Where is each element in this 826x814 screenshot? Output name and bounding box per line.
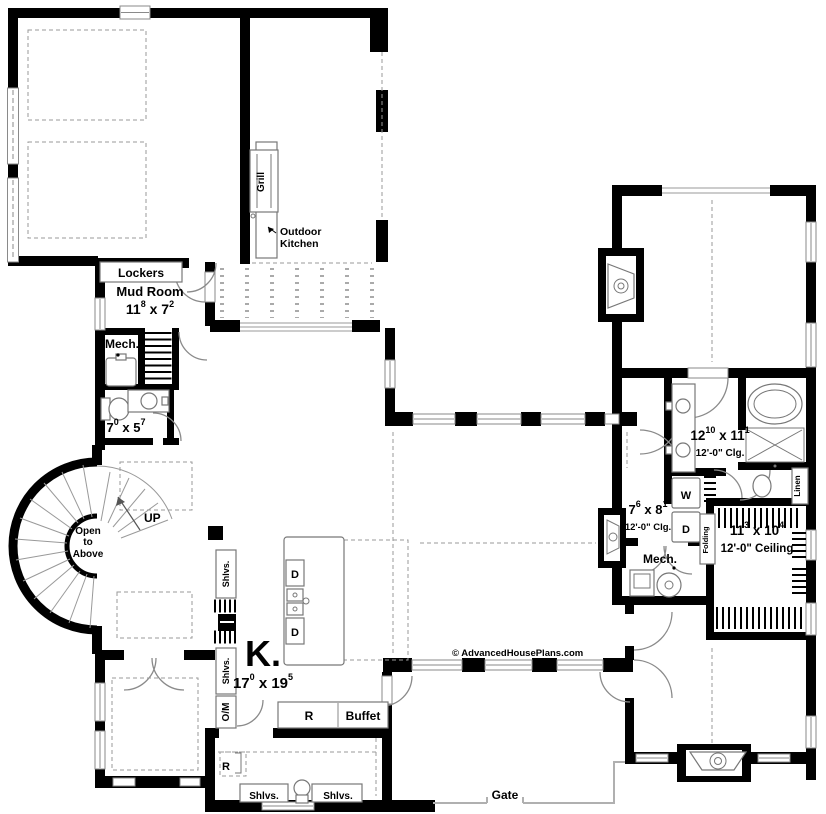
label-closet-dims: 113 x 104	[730, 520, 784, 538]
outdoor-kitchen-fixtures	[250, 142, 278, 258]
sliding-doors	[240, 188, 770, 331]
floor-plan: Lockers Mud Room 118 x 72 Mech. 70 x 57 …	[0, 0, 826, 814]
copyright: © AdvancedHousePlans.com	[452, 648, 583, 659]
water-heater	[106, 358, 136, 386]
label-washer: W	[681, 490, 692, 502]
label-powder-dims: 70 x 57	[107, 417, 146, 435]
label-outdoor-kitchen-1: Outdoor	[280, 226, 321, 238]
label-mech-left: Mech.	[105, 337, 139, 351]
vanity-sink-1	[676, 399, 690, 413]
label-fridge-counter: R	[305, 709, 314, 723]
label-laundry-clg: 12'-0" Clg.	[625, 522, 671, 533]
label-fridge-pantry: R	[222, 761, 230, 773]
range-hatch	[214, 606, 238, 637]
label-dryer: D	[682, 524, 690, 536]
fence	[433, 762, 625, 803]
label-shelves-1: Shlvs.	[221, 561, 231, 588]
dashed-lines	[28, 30, 712, 796]
floor-plan-drawing: Lockers Mud Room 118 x 72 Mech. 70 x 57 …	[0, 0, 826, 814]
porch-decking	[222, 268, 372, 318]
label-mech-right: Mech.	[643, 552, 677, 566]
label-mud-room: Mud Room	[116, 284, 183, 299]
label-dishwasher-2: D	[291, 627, 299, 639]
label-folding: Folding	[701, 526, 710, 553]
label-open-above-2: to	[83, 537, 92, 548]
kitchen-fixtures	[216, 537, 388, 803]
label-outdoor-kitchen-2: Kitchen	[280, 238, 319, 250]
label-gate: Gate	[492, 788, 519, 802]
label-laundry-dims: 76 x 81	[629, 499, 668, 517]
fridge-nook	[235, 753, 241, 773]
label-pantry-shelves-1: Shlvs.	[249, 791, 279, 802]
label-shelves-2: Shlvs.	[221, 658, 231, 685]
fireplace-master	[598, 248, 644, 322]
label-mud-dims: 118 x 72	[126, 299, 174, 317]
mech-right-fixtures	[116, 353, 681, 597]
label-kitchen-dims: 170 x 195	[233, 672, 293, 692]
sink-bowl-1	[287, 589, 303, 601]
label-grill: Grill	[256, 172, 267, 192]
label-up: UP	[144, 511, 161, 525]
fireplace-courtyard	[598, 508, 626, 568]
label-linen: Linen	[793, 475, 802, 496]
powder-sink	[141, 393, 157, 409]
label-lockers: Lockers	[118, 266, 164, 280]
toilet-bowl	[109, 398, 129, 420]
label-pantry-shelves-2: Shlvs.	[323, 791, 353, 802]
vanity-sink-2	[676, 443, 690, 457]
label-oven-micro: O/M	[221, 703, 232, 722]
fireplace-sitting	[677, 744, 751, 782]
toilet-2	[753, 475, 771, 497]
sink-bowl-2	[287, 603, 303, 615]
mech-equipment	[657, 573, 681, 597]
label-open-above-1: Open	[75, 526, 101, 537]
pantry-sink	[294, 780, 310, 796]
label-bath-dims: 1210 x 111	[690, 425, 749, 443]
label-kitchen: K.	[245, 633, 281, 674]
label-open-above-3: Above	[73, 549, 104, 560]
label-dishwasher-1: D	[291, 569, 299, 581]
label-closet-ceiling: 12'-0" Ceiling	[721, 543, 794, 555]
label-bath-clg: 12'-0" Clg.	[696, 448, 745, 459]
label-buffet: Buffet	[346, 709, 381, 723]
